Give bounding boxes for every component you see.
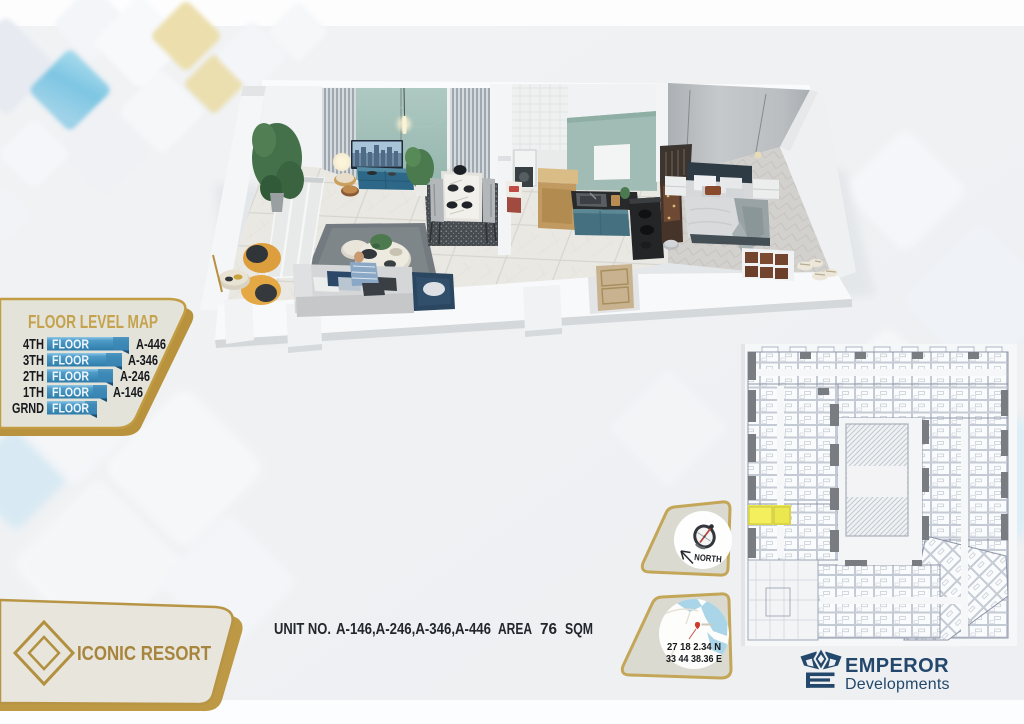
svg-text:27 18 2.34 N: 27 18 2.34 N (667, 642, 721, 653)
svg-text:A-446: A-446 (136, 337, 166, 353)
svg-text:FLOOR LEVEL MAP: FLOOR LEVEL MAP (28, 312, 158, 332)
svg-text:2TH: 2TH (23, 369, 44, 385)
svg-text:GRND: GRND (12, 401, 44, 417)
svg-text:A-146: A-146 (113, 385, 143, 401)
svg-text:76: 76 (540, 621, 557, 638)
svg-text:SQM: SQM (565, 621, 593, 638)
svg-text:FLOOR: FLOOR (52, 354, 89, 368)
svg-text:ICONIC RESORT: ICONIC RESORT (77, 643, 211, 665)
svg-text:FLOOR: FLOOR (52, 402, 89, 416)
svg-text:A-146,A-246,A-346,A-446: A-146,A-246,A-346,A-446 (336, 621, 491, 638)
svg-text:Developments: Developments (845, 676, 950, 693)
svg-text:FLOOR: FLOOR (52, 386, 89, 400)
svg-text:FLOOR: FLOOR (52, 338, 89, 352)
svg-text:1TH: 1TH (23, 385, 44, 401)
svg-text:A-246: A-246 (120, 369, 150, 385)
svg-text:A-346: A-346 (128, 353, 158, 369)
svg-text:4TH: 4TH (23, 337, 44, 353)
svg-text:UNIT NO.: UNIT NO. (274, 621, 331, 638)
svg-text:33 44 38.36 E: 33 44 38.36 E (666, 654, 722, 665)
svg-text:EMPEROR: EMPEROR (845, 655, 949, 677)
svg-text:AREA: AREA (498, 621, 532, 638)
svg-text:FLOOR: FLOOR (52, 370, 89, 384)
svg-text:3TH: 3TH (23, 353, 44, 369)
